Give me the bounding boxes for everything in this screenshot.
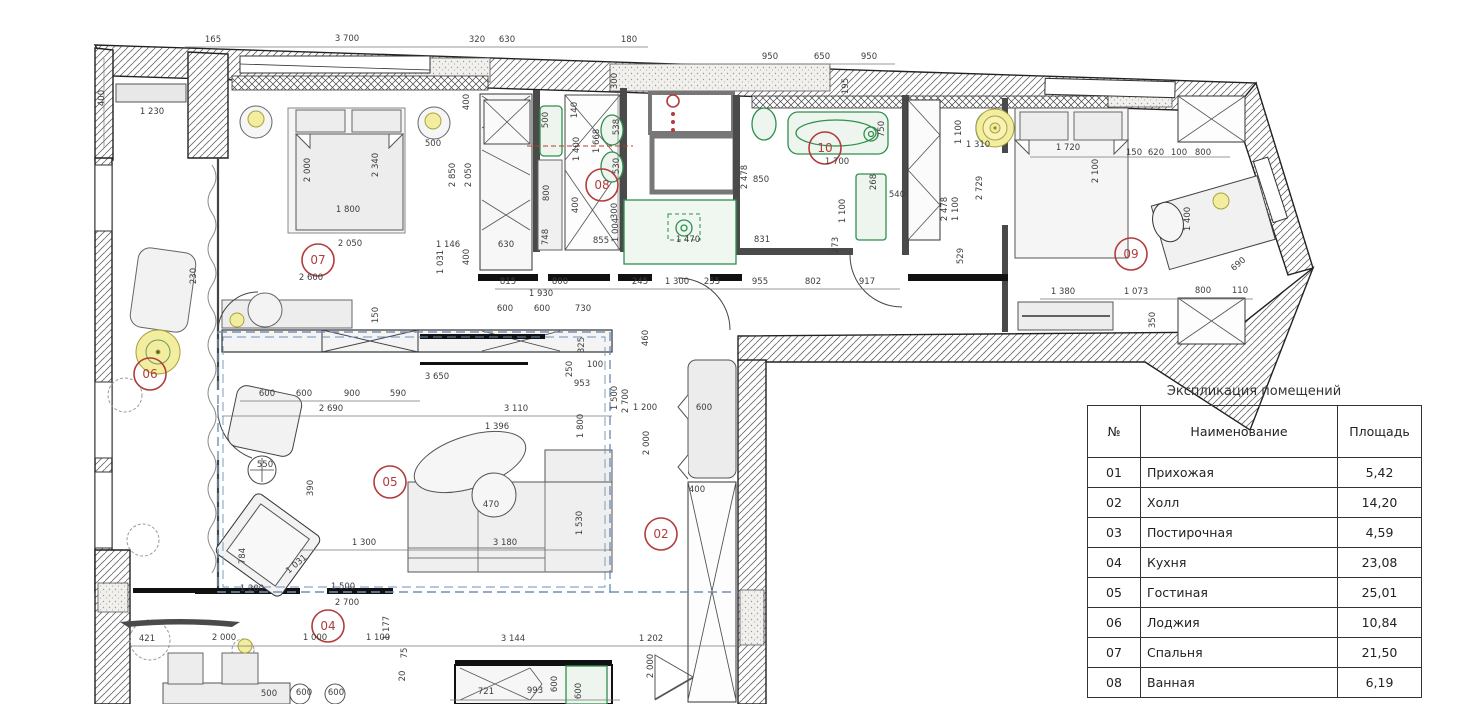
explication-row: 05Гостиная25,01 [1088,578,1422,608]
room-area-cell: 4,59 [1338,518,1422,548]
dimension-label: 273 [831,237,841,253]
dimension-label: 500 [261,689,277,699]
svg-text:07: 07 [310,253,325,267]
dimension-label: 230 [189,268,199,284]
room-name-cell: Прихожая [1141,458,1338,488]
dimension-label: 2 100 [1091,159,1101,183]
dimension-label: 590 [390,389,406,399]
dimension-label: 2 000 [646,654,656,678]
room-name-cell: Ванная [1141,668,1338,698]
room-area-cell: 23,08 [1338,548,1422,578]
room-number-cell: 04 [1088,548,1141,578]
dimension-label: 400 [462,94,472,110]
dimension-label: 1 700 [825,157,849,167]
dimension-label: 855 [593,236,609,246]
dimension-label: 1 200 [240,584,264,594]
dimension-label: 2 478 [940,197,950,221]
explication-panel: Экспликация помещений № Наименование Пло… [1087,384,1421,698]
dimension-label: 1 177 [382,616,392,640]
dimension-label: 100 [587,360,603,370]
dimension-label: 2 050 [464,163,474,187]
dimension-label: 1 668 [592,129,602,153]
dimension-label: 1 202 [639,634,663,644]
dimension-label: 3 180 [493,538,517,548]
dimension-label: 1 400 [1183,207,1193,231]
dimension-label: 1 530 [575,511,585,535]
dimension-label: 955 [752,277,768,287]
dimension-label: 950 [861,52,877,62]
dimension-label: 600 [296,389,312,399]
dimension-label: 1 031 [436,250,446,274]
dimension-label: 250 [565,361,575,377]
dimension-label: 917 [859,277,875,287]
svg-text:06: 06 [142,367,157,381]
dimension-label: 460 [641,330,651,346]
dimension-label: 748 [541,229,551,245]
dimension-label: 1 800 [336,205,360,215]
room-number-cell: 06 [1088,608,1141,638]
explication-table: № Наименование Площадь 01Прихожая5,4202Х… [1087,405,1422,698]
dimension-label: 2 000 [212,633,236,643]
dimension-label: 1 800 [576,414,586,438]
dimension-label: 1 073 [1124,287,1148,297]
dimension-label: 1 470 [676,235,700,245]
room-number-cell: 07 [1088,638,1141,668]
svg-text:09: 09 [1123,247,1138,261]
dimension-label: 110 [1232,286,1248,296]
explication-row: 08Ванная6,19 [1088,668,1422,698]
explication-row: 04Кухня23,08 [1088,548,1422,578]
dimension-label: 600 [259,389,275,399]
dimension-label: 2 700 [621,389,631,413]
room-name-cell: Постирочная [1141,518,1338,548]
dimension-label: 815 [500,277,516,287]
explication-row: 02Холл14,20 [1088,488,1422,518]
dimension-label: 140 [570,102,580,118]
dimension-label: 802 [805,277,821,287]
dimension-label: 325 [577,337,587,353]
dimension-label: 1 230 [140,107,164,117]
col-header-number: № [1088,406,1141,458]
room-marker-02: 02 [645,518,677,550]
dimension-label: 1 004 [611,218,621,242]
dimension-label: 800 [1195,286,1211,296]
dimension-label: 950 [762,52,778,62]
dimension-label: 600 [497,304,513,314]
dimension-label: 390 [306,480,316,496]
svg-text:10: 10 [817,141,832,155]
dimension-label: 2 700 [335,598,359,608]
dimension-label: 690 [1229,255,1248,273]
dimension-label: 600 [296,688,312,698]
dimension-label: 2 000 [303,158,313,182]
room-number-cell: 02 [1088,488,1141,518]
dimension-label: 530 [612,158,622,174]
dimension-label: 529 [956,248,966,264]
dimension-label: 721 [478,687,494,697]
room-number-cell: 08 [1088,668,1141,698]
dimension-label: 1 100 [838,199,848,223]
dimension-label: 300 [610,203,620,219]
room-area-cell: 6,19 [1338,668,1422,698]
floorplan-sheet: 0708100906050204 1653 700320630180950650… [0,0,1472,704]
room-name-cell: Лоджия [1141,608,1338,638]
dimension-label: 1 300 [665,277,689,287]
dimension-label: 100 [1171,148,1187,158]
dimension-label: 1 100 [954,120,964,144]
dimension-label: 500 [425,139,441,149]
room-number-cell: 01 [1088,458,1141,488]
dimension-label: 1 000 [303,633,327,643]
dimension-label: 3 110 [504,404,528,414]
room-marker-07: 07 [302,244,334,276]
room-name-cell: Спальня [1141,638,1338,668]
svg-text:08: 08 [594,178,609,192]
dimension-label: 3 700 [335,34,359,44]
dimension-label: 400 [571,197,581,213]
dimension-label: 538 [612,119,622,135]
dimension-label: 150 [1126,148,1142,158]
dimension-label: 2 478 [740,165,750,189]
dimension-label: 540 [889,190,905,200]
dimension-label: 600 [534,304,550,314]
dimension-label: 300 [610,73,620,89]
dimension-label: 400 [462,249,472,265]
explication-row: 06Лоджия10,84 [1088,608,1422,638]
dimension-label: 2 850 [448,163,458,187]
dimension-label: 620 [1148,148,1164,158]
svg-text:05: 05 [382,475,397,489]
dimension-label: 993 [527,686,543,696]
explication-title: Экспликация помещений [1087,384,1421,399]
room-name-cell: Кухня [1141,548,1338,578]
room-area-cell: 21,50 [1338,638,1422,668]
dimension-label: 500 [541,112,551,128]
dimension-label: 600 [550,676,560,692]
dimension-label: 2 340 [371,153,381,177]
dimension-label: 600 [328,688,344,698]
dimension-label: 600 [574,683,584,699]
dimension-label: 1 400 [572,137,582,161]
room-area-cell: 5,42 [1338,458,1422,488]
dimension-label: 1 300 [352,538,376,548]
svg-text:02: 02 [653,527,668,541]
dimension-label: 421 [139,634,155,644]
explication-row: 07Спальня21,50 [1088,638,1422,668]
dimension-label: 2 729 [975,176,985,200]
dimension-label: 2 690 [319,404,343,414]
room-area-cell: 14,20 [1338,488,1422,518]
dimension-label: 630 [498,240,514,250]
dimension-label: 255 [704,277,720,287]
dimension-label: 953 [574,379,590,389]
dimension-label: 3 650 [425,372,449,382]
dimension-label: 730 [575,304,591,314]
dimension-label: 1 500 [610,386,620,410]
dimension-label: 750 [877,121,887,137]
dimension-label: 1 146 [436,240,460,250]
dimension-label: 400 [97,90,107,106]
dimension-label: 3 144 [501,634,525,644]
dimension-label: 320 [469,35,485,45]
dimension-label: 2 000 [642,431,652,455]
dimension-label: 165 [205,35,221,45]
dimension-label: 630 [499,35,515,45]
room-name-cell: Холл [1141,488,1338,518]
room-area-cell: 25,01 [1338,578,1422,608]
dimension-label: 20 [398,671,408,682]
dimension-label: 1 396 [485,422,509,432]
dimension-label: 900 [344,389,360,399]
dimension-label: 150 [371,307,381,323]
dimension-label: 850 [753,175,769,185]
svg-text:04: 04 [320,619,335,633]
dimension-label: 268 [869,174,879,190]
dimension-label: 470 [483,500,499,510]
col-header-name: Наименование [1141,406,1338,458]
dimension-label: 1 200 [633,403,657,413]
dimension-label: 350 [1148,312,1158,328]
room-number-cell: 05 [1088,578,1141,608]
dimension-label: 831 [754,235,770,245]
dimension-label: 400 [689,485,705,495]
dimension-label: 800 [542,185,552,201]
col-header-area: Площадь [1338,406,1422,458]
room-area-cell: 10,84 [1338,608,1422,638]
dimension-label: 1 500 [331,582,355,592]
dimension-label: 2 050 [338,239,362,249]
dimension-label: 600 [696,403,712,413]
dimension-label: 195 [841,78,851,94]
dimension-label: 800 [552,277,568,287]
room-marker-05: 05 [374,466,406,498]
room-name-cell: Гостиная [1141,578,1338,608]
dimension-label: 550 [257,460,273,470]
dimension-label: 1 930 [529,289,553,299]
dimension-label: 1 380 [1051,287,1075,297]
dimension-label: 245 [632,277,648,287]
dimension-label: 784 [238,548,248,564]
dimension-label: 2 600 [299,273,323,283]
dimension-label: 1 720 [1056,143,1080,153]
dimension-label: 1 310 [966,140,990,150]
room-number-cell: 03 [1088,518,1141,548]
explication-row: 03Постирочная4,59 [1088,518,1422,548]
dimension-label: 75 [400,648,410,659]
dimension-label: 650 [814,52,830,62]
dimension-label: 800 [1195,148,1211,158]
dimension-label: 180 [621,35,637,45]
explication-row: 01Прихожая5,42 [1088,458,1422,488]
dimension-label: 1 100 [951,197,961,221]
